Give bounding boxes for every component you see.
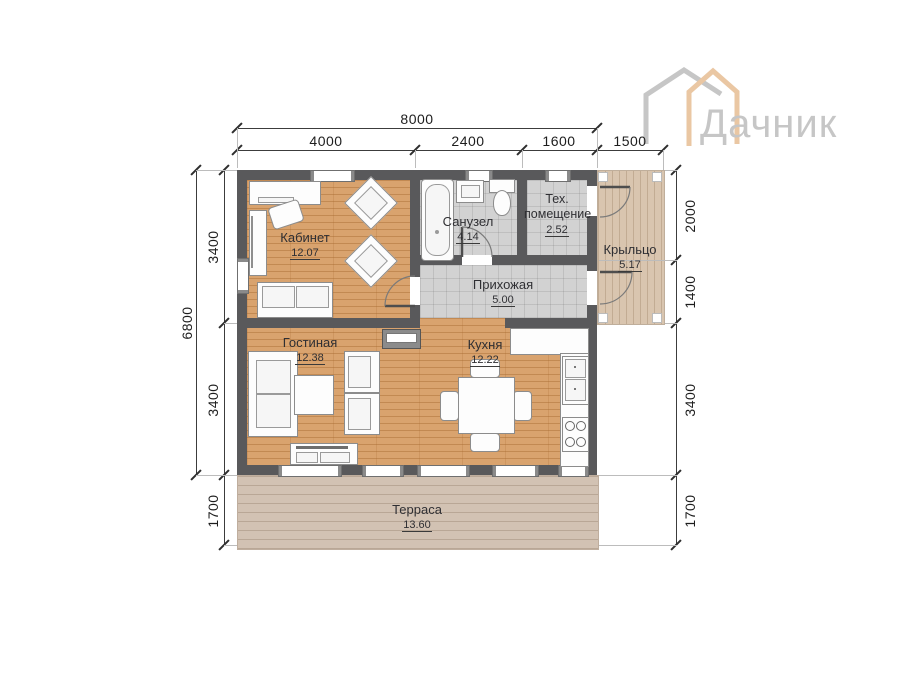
room-label-terrace: Терраса 13.60 <box>367 502 467 532</box>
room-area: 5.17 <box>597 259 663 272</box>
room-label-bathroom: Санузел 4.14 <box>428 214 508 244</box>
room-label-living: Гостиная 12.38 <box>260 335 360 365</box>
room-name: Санузел <box>428 214 508 229</box>
room-area: 5.00 <box>455 294 551 307</box>
room-area: 12.38 <box>260 352 360 365</box>
room-name: Гостиная <box>260 335 360 350</box>
room-area: 2.52 <box>524 224 590 237</box>
room-label-porch: Крыльцо 5.17 <box>597 242 663 272</box>
room-label-tech: Тех. помещение 2.52 <box>524 192 590 237</box>
room-area: 12.22 <box>435 354 535 367</box>
room-name: Терраса <box>367 502 467 517</box>
office-door-arc <box>385 276 415 306</box>
room-name: Кухня <box>435 337 535 352</box>
room-label-office: Кабинет 12.07 <box>255 230 355 260</box>
room-area: 13.60 <box>367 519 467 532</box>
room-label-kitchen: Кухня 12.22 <box>435 337 535 367</box>
room-area: 4.14 <box>428 231 508 244</box>
room-label-hallway: Прихожая 5.00 <box>455 277 551 307</box>
room-name: Крыльцо <box>597 242 663 257</box>
tech-door-arc <box>600 187 630 217</box>
room-name: Тех. помещение <box>524 192 590 222</box>
floor-plan-page: Дачник <box>0 0 900 696</box>
room-name: Кабинет <box>255 230 355 245</box>
room-name: Прихожая <box>455 277 551 292</box>
hall-door-arc <box>600 272 632 304</box>
room-area: 12.07 <box>255 247 355 260</box>
